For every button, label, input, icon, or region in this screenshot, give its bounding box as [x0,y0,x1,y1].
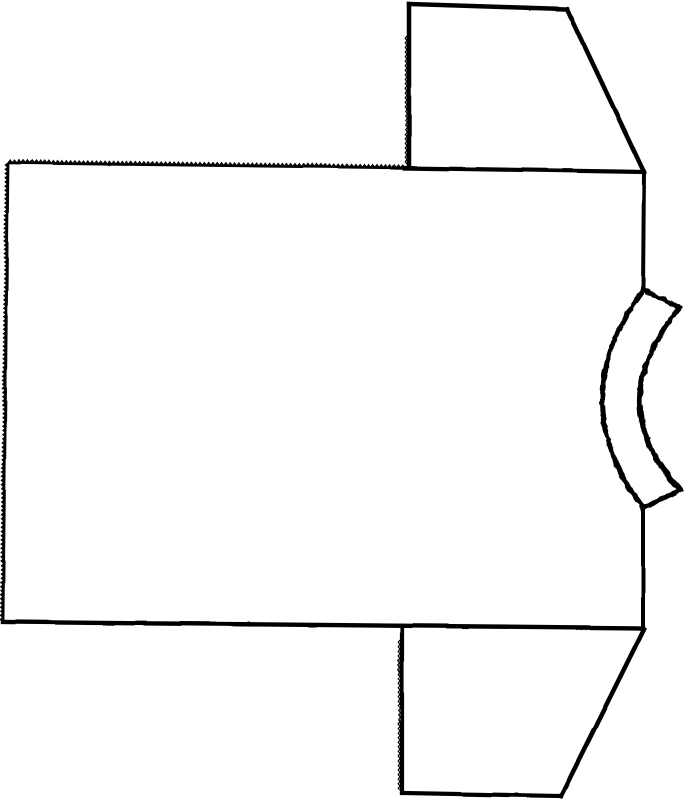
figure-root [1,4,681,796]
top-sleeve-top-edge [409,4,567,9]
neckband [603,290,681,508]
body-top-edge [405,168,644,172]
bottom-sleeve-underarm-edge [561,629,644,796]
top-sleeve-left-notches [405,36,407,164]
neckband-inner-curve [603,290,644,508]
top-sleeve [405,4,644,172]
bottom-sleeve-bottom-edge [402,793,561,796]
pattern-sheet [0,0,687,800]
bottom-sleeve [398,626,644,796]
body-bottom-edge [3,622,643,628]
top-sleeve-underarm-edge [567,9,644,172]
neckband-bottom-end [643,490,680,508]
body-right-edge-upper [643,172,644,290]
pattern-svg [0,0,687,800]
bottom-sleeve-left-notches [398,640,400,790]
neckband-outer-curve [640,307,680,490]
body-panel [1,160,645,628]
neckband-top-end [643,290,680,307]
